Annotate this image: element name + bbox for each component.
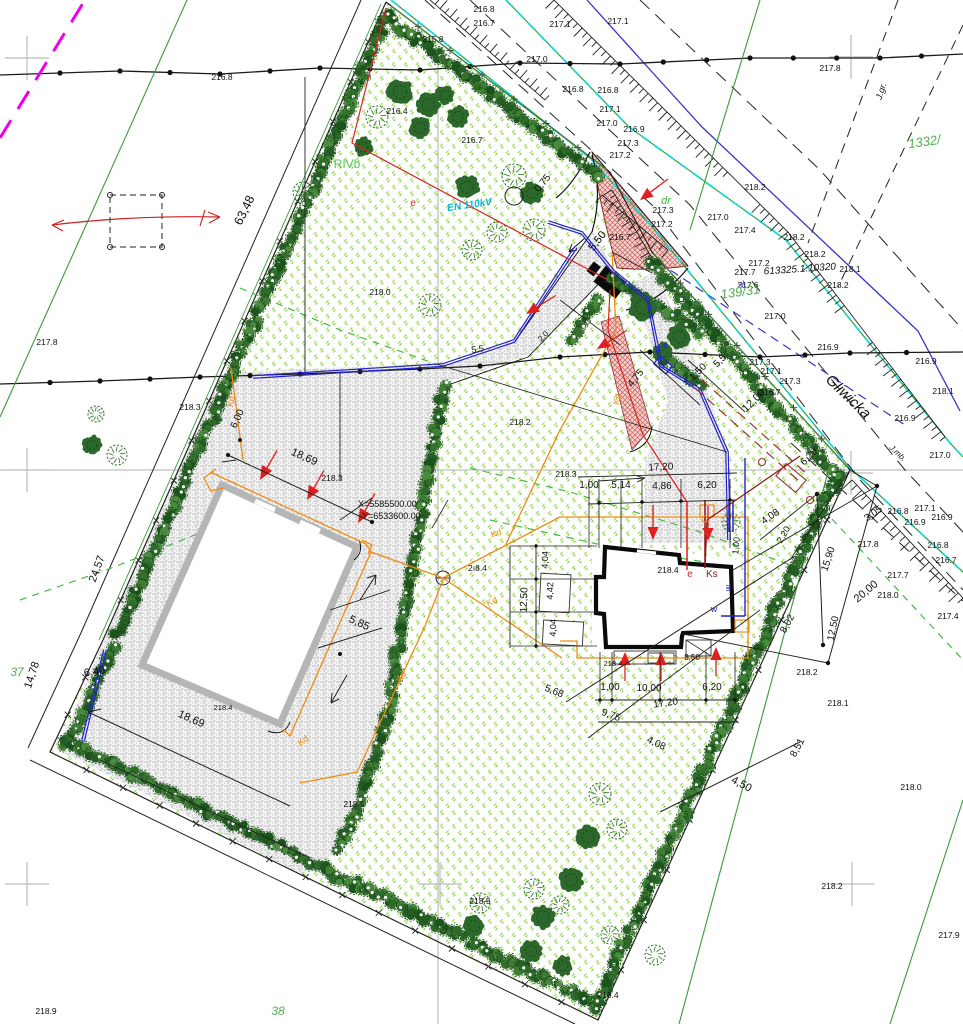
svg-text:217.8: 217.8 bbox=[819, 63, 841, 73]
svg-text:2ı8.4: 2ı8.4 bbox=[468, 563, 487, 573]
svg-text:216.9: 216.9 bbox=[931, 512, 953, 522]
svg-text:218.1: 218.1 bbox=[827, 698, 849, 708]
svg-text:Ks: Ks bbox=[706, 569, 718, 580]
svg-text:4,42: 4,42 bbox=[545, 582, 556, 600]
svg-text:216.9: 216.9 bbox=[894, 413, 916, 423]
svg-text:218.5: 218.5 bbox=[469, 896, 491, 906]
svg-text:218.3: 218.3 bbox=[321, 473, 343, 483]
svg-text:218.1: 218.1 bbox=[932, 386, 954, 396]
svg-text:215.8: 215.8 bbox=[422, 34, 444, 44]
svg-text:216.9: 216.9 bbox=[904, 517, 926, 527]
svg-text:218.0: 218.0 bbox=[900, 782, 922, 792]
svg-text:217.0: 217.0 bbox=[929, 450, 951, 460]
svg-text:217.1: 217.1 bbox=[760, 366, 782, 376]
svg-text:217.3: 217.3 bbox=[779, 376, 801, 386]
svg-text:216.7: 216.7 bbox=[461, 135, 483, 145]
svg-text:e: e bbox=[687, 569, 693, 580]
svg-text:217.2: 217.2 bbox=[651, 219, 673, 229]
svg-text:w: w bbox=[710, 604, 718, 614]
svg-text:217.7: 217.7 bbox=[734, 267, 756, 277]
svg-text:218.4: 218.4 bbox=[604, 659, 623, 668]
svg-text:217.0: 217.0 bbox=[596, 118, 618, 128]
svg-text:216.7: 216.7 bbox=[935, 555, 957, 565]
svg-text:218.2: 218.2 bbox=[744, 182, 766, 192]
svg-text:216.8: 216.8 bbox=[211, 72, 233, 82]
svg-text:218.3: 218.3 bbox=[179, 402, 201, 412]
svg-text:218.9: 218.9 bbox=[35, 1006, 57, 1016]
svg-text:217.0: 217.0 bbox=[764, 311, 786, 321]
svg-text:216.8: 216.8 bbox=[562, 84, 584, 94]
svg-text:218.1: 218.1 bbox=[839, 264, 861, 274]
svg-text:e: e bbox=[410, 198, 416, 209]
svg-text:218.2: 218.2 bbox=[509, 417, 531, 427]
svg-text:217.9: 217.9 bbox=[938, 930, 960, 940]
svg-text:217.1: 217.1 bbox=[549, 19, 571, 29]
svg-text:4,86: 4,86 bbox=[652, 481, 672, 492]
svg-text:217.1: 217.1 bbox=[607, 16, 629, 26]
svg-text:10,00: 10,00 bbox=[636, 683, 661, 694]
svg-text:216.9: 216.9 bbox=[915, 356, 937, 366]
svg-text:6,20: 6,20 bbox=[702, 682, 722, 693]
svg-text:217.0: 217.0 bbox=[707, 212, 729, 222]
svg-text:218.4: 218.4 bbox=[214, 703, 233, 712]
svg-text:217.4: 217.4 bbox=[937, 611, 959, 621]
svg-text:Y=6533600.00: Y=6533600.00 bbox=[362, 511, 421, 521]
svg-text:1,00: 1,00 bbox=[579, 480, 599, 491]
svg-text:218.2: 218.2 bbox=[804, 249, 826, 259]
svg-text:5,14: 5,14 bbox=[611, 480, 631, 491]
svg-text:218.4: 218.4 bbox=[657, 565, 679, 575]
svg-text:w: w bbox=[723, 584, 733, 592]
svg-text:216.8: 216.8 bbox=[887, 506, 909, 516]
svg-text:1,00: 1,00 bbox=[730, 537, 741, 555]
svg-text:216.4: 216.4 bbox=[386, 106, 408, 116]
svg-text:216.7: 216.7 bbox=[473, 18, 495, 28]
svg-text:4,04: 4,04 bbox=[540, 551, 551, 569]
svg-text:216.8: 216.8 bbox=[927, 540, 949, 550]
svg-text:218.0: 218.0 bbox=[369, 287, 391, 297]
svg-text:RIVb: RIVb bbox=[334, 157, 361, 171]
svg-text:217.8: 217.8 bbox=[857, 539, 879, 549]
svg-text:216.9: 216.9 bbox=[817, 342, 839, 352]
svg-text:218.0: 218.0 bbox=[877, 590, 899, 600]
svg-text:218.4: 218.4 bbox=[597, 990, 619, 1000]
svg-text:218.2: 218.2 bbox=[827, 280, 849, 290]
svg-text:216.8: 216.8 bbox=[597, 85, 619, 95]
svg-text:217.1: 217.1 bbox=[599, 104, 621, 114]
svg-text:218.3: 218.3 bbox=[555, 469, 577, 479]
svg-text:6,20: 6,20 bbox=[697, 480, 717, 491]
svg-text:218.5: 218.5 bbox=[343, 799, 365, 809]
svg-text:217.0: 217.0 bbox=[526, 54, 548, 64]
svg-text:17,20: 17,20 bbox=[648, 461, 674, 473]
svg-text:217.8: 217.8 bbox=[36, 337, 58, 347]
svg-text:216.9: 216.9 bbox=[623, 124, 645, 134]
svg-text:217.7: 217.7 bbox=[887, 570, 909, 580]
svg-text:218.2: 218.2 bbox=[796, 667, 818, 677]
svg-text:12,50: 12,50 bbox=[519, 587, 531, 613]
svg-text:38: 38 bbox=[271, 1004, 285, 1018]
svg-text:217.2: 217.2 bbox=[609, 150, 631, 160]
svg-text:8,50: 8,50 bbox=[684, 653, 700, 662]
svg-text:217.3: 217.3 bbox=[617, 138, 639, 148]
svg-text:217.4: 217.4 bbox=[734, 225, 756, 235]
svg-text:Kd: Kd bbox=[225, 395, 237, 408]
svg-text:218.2: 218.2 bbox=[821, 881, 843, 891]
svg-text:4,04: 4,04 bbox=[548, 619, 559, 637]
svg-text:dr: dr bbox=[661, 195, 672, 207]
svg-text:37: 37 bbox=[10, 665, 25, 679]
svg-text:216.7: 216.7 bbox=[609, 232, 631, 242]
svg-text:218.2: 218.2 bbox=[783, 232, 805, 242]
svg-text:216.8: 216.8 bbox=[473, 4, 495, 14]
svg-text:1,00: 1,00 bbox=[600, 682, 620, 693]
svg-text:5,5: 5,5 bbox=[471, 343, 485, 355]
svg-text:X=5585500.00: X=5585500.00 bbox=[358, 499, 417, 509]
